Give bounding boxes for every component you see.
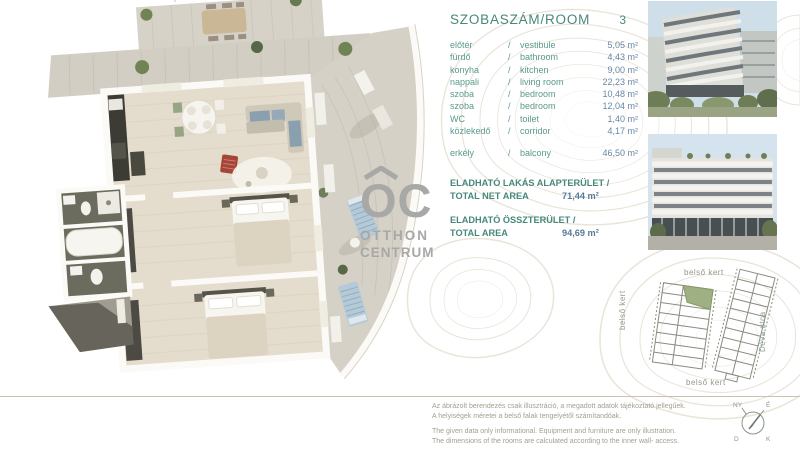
otthon-centrum-logo: OC OTTHON CENTRUM: [360, 166, 446, 260]
compass-label-south: D: [734, 436, 739, 443]
disclaimer-en-line2: The dimensions of the rooms are calculat…: [432, 437, 724, 447]
total-block: ELADHATÓ LAKÁS ALAPTERÜLET / TOTAL NET A…: [450, 177, 640, 203]
site-label-deva-utca: Déva utca: [758, 311, 767, 352]
outdoor-dining-table: [201, 8, 247, 35]
room-label-hu: szoba: [450, 100, 508, 112]
separator: /: [508, 39, 520, 51]
room-table: előtér / vestibule 5,05 m² fürdő / bathr…: [450, 39, 640, 137]
table-row: előtér / vestibule 5,05 m²: [450, 39, 640, 51]
bathroom: [59, 187, 130, 299]
disclaimer: Az ábrázolt berendezés csak illusztráció…: [432, 402, 724, 451]
room-label-hu: fürdő: [450, 51, 508, 63]
compass-label-west: NY: [733, 402, 742, 409]
room-count: 3: [619, 13, 640, 27]
room-label-hu: szoba: [450, 88, 508, 100]
site-label-inner-garden-left: belső kert: [618, 290, 627, 330]
separator: /: [508, 125, 520, 137]
room-label-en: balcony: [520, 147, 594, 159]
separator: /: [508, 76, 520, 88]
planter: [323, 164, 335, 193]
entrance-door: [116, 299, 126, 323]
total-label-en: TOTAL AREA: [450, 227, 562, 240]
footer-divider: [0, 396, 800, 397]
compass-label-east: K: [766, 436, 770, 443]
disclaimer-hu-line1: Az ábrázolt berendezés csak illusztráció…: [432, 402, 724, 412]
room-label-hu: nappali: [450, 76, 508, 88]
disclaimer-hu-line2: A helyiségek méretei a belső falak tenge…: [432, 412, 724, 422]
room-label-en: kitchen: [520, 64, 594, 76]
room-label-en: vestibule: [520, 39, 594, 51]
table-row: WC / toilet 1,40 m²: [450, 113, 640, 125]
separator: /: [508, 100, 520, 112]
room-area: 4,17 m²: [594, 125, 640, 137]
washbasin: [63, 195, 76, 205]
planter: [330, 316, 342, 343]
bathtub: [65, 227, 123, 257]
separator: /: [508, 113, 520, 125]
room-label-en: corridor: [520, 125, 594, 137]
room-area: 12,04 m²: [594, 100, 640, 112]
compass: NY É D K: [730, 402, 778, 446]
building-render-photo-bottom: [648, 134, 777, 250]
room-label-en: bedroom: [520, 100, 594, 112]
logo-mark: OC: [360, 180, 446, 222]
room-label-en: living room: [520, 76, 594, 88]
entrance: [48, 296, 133, 354]
room-label-en: bathroom: [520, 51, 594, 63]
brochure-page: OC OTTHON CENTRUM SZOBASZÁM/ROOM 3 előté…: [0, 0, 800, 451]
room-area: 46,50 m²: [594, 147, 640, 159]
total-value: 94,69 m²: [562, 228, 640, 238]
kitchen-island: [130, 151, 146, 176]
site-label-inner-garden-top: belső kert: [684, 268, 724, 277]
room-area: 9,00 m²: [594, 64, 640, 76]
room-label-hu: előtér: [450, 39, 508, 51]
room-label-hu: közlekedő: [450, 125, 508, 137]
total-block: ELADHATÓ ÖSSZTERÜLET / TOTAL AREA 94,69 …: [450, 214, 640, 240]
table-row: konyha / kitchen 9,00 m²: [450, 64, 640, 76]
room-area: 5,05 m²: [594, 39, 640, 51]
totals-section: ELADHATÓ LAKÁS ALAPTERÜLET / TOTAL NET A…: [450, 177, 640, 240]
compass-label-north: É: [766, 402, 770, 409]
table-row: fürdő / bathroom 4,43 m²: [450, 51, 640, 63]
room-label-en: bedroom: [520, 88, 594, 100]
room-area: 1,40 m²: [594, 113, 640, 125]
room-area: 10,48 m²: [594, 88, 640, 100]
table-row: nappali / living room 22,23 m²: [450, 76, 640, 88]
separator: /: [508, 88, 520, 100]
room-label-hu: erkély: [450, 147, 508, 159]
room-label-en: toilet: [520, 113, 594, 125]
balcony-row: erkély / balcony 46,50 m²: [450, 147, 640, 159]
building-render-photo-top: [648, 1, 777, 117]
room-label-hu: WC: [450, 113, 508, 125]
table-row: szoba / bedroom 12,04 m²: [450, 100, 640, 112]
room-area: 4,43 m²: [594, 51, 640, 63]
separator: /: [508, 147, 520, 159]
table-row: közlekedő / corridor 4,17 m²: [450, 125, 640, 137]
site-label-inner-garden-bottom: belső kert: [686, 378, 726, 387]
logo-line2: CENTRUM: [360, 245, 446, 260]
site-key-plan: [634, 258, 798, 392]
total-label-en: TOTAL NET AREA: [450, 190, 562, 203]
separator: /: [508, 51, 520, 63]
total-value: 71,44 m²: [562, 191, 640, 201]
washbasin: [70, 266, 83, 276]
room-label-hu: konyha: [450, 64, 508, 76]
panel-title: SZOBASZÁM/ROOM: [450, 12, 590, 27]
logo-line1: OTTHON: [360, 228, 446, 243]
room-area: 22,23 m²: [594, 76, 640, 88]
total-label-hu: ELADHATÓ ÖSSZTERÜLET /: [450, 214, 640, 227]
total-label-hu: ELADHATÓ LAKÁS ALAPTERÜLET /: [450, 177, 640, 190]
separator: /: [508, 64, 520, 76]
disclaimer-en-line1: The given data only informational. Equip…: [432, 427, 724, 437]
table-row: szoba / bedroom 10,48 m²: [450, 88, 640, 100]
room-data-panel: SZOBASZÁM/ROOM 3 előtér / vestibule 5,05…: [450, 12, 640, 251]
